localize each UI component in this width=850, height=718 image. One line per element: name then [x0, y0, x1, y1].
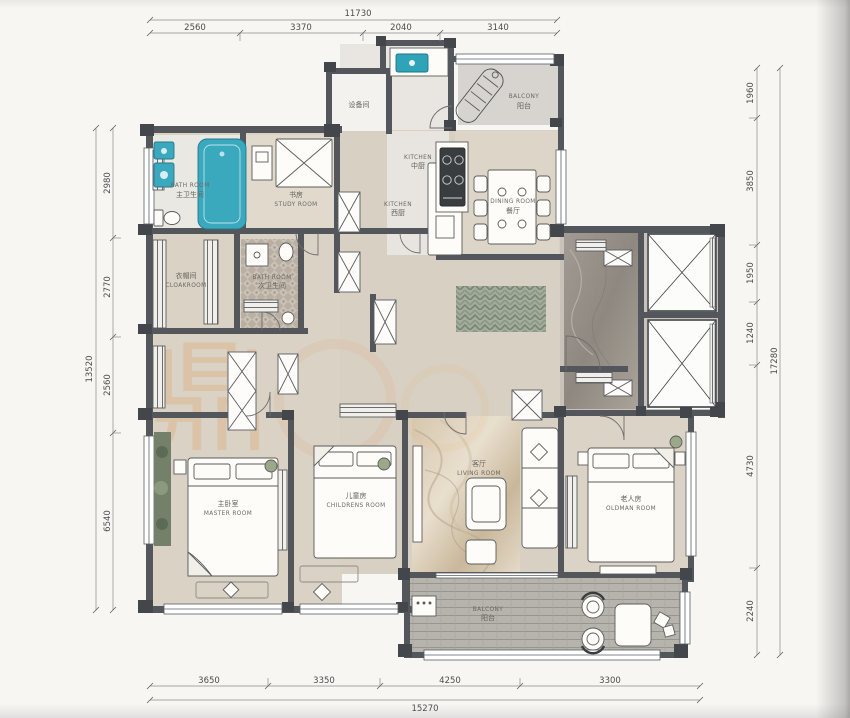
svg-text:DINING ROOM: DINING ROOM [490, 199, 535, 205]
closet-x-4 [278, 354, 298, 394]
svg-text:客厅: 客厅 [472, 459, 486, 468]
room-label-bath-guest: BATH ROOM 次卫生间 [253, 275, 292, 290]
elevator-1 [648, 234, 716, 311]
balcony-table [615, 604, 651, 646]
svg-text:4250: 4250 [439, 676, 461, 686]
svg-text:1240: 1240 [746, 322, 756, 344]
children-plant-pot [378, 458, 390, 470]
svg-text:1950: 1950 [746, 262, 756, 284]
svg-text:LIVING ROOM: LIVING ROOM [457, 471, 501, 477]
master-bed [188, 458, 278, 576]
floorplan-drawing: 鼎 [0, 0, 850, 718]
window-balcony-top [456, 54, 554, 64]
master-plant [154, 432, 171, 546]
svg-text:BATH ROOM: BATH ROOM [171, 183, 210, 189]
dim-right: 1960 3850 1950 1240 4730 2240 17280 [746, 65, 783, 658]
svg-text:阳台: 阳台 [481, 613, 495, 622]
entry-mat [456, 286, 546, 332]
oldman-bench [600, 566, 656, 574]
svg-text:3350: 3350 [313, 676, 335, 686]
study-desk [252, 146, 272, 180]
room-label-bath-master: BATH ROOM 主卫生间 [171, 183, 210, 199]
svg-text:CHILDRENS ROOM: CHILDRENS ROOM [326, 503, 385, 509]
cloak-wardrobe-right [204, 240, 218, 324]
entry-shoe-cabinet [576, 240, 606, 251]
svg-text:3300: 3300 [599, 676, 621, 686]
svg-text:MASTER ROOM: MASTER ROOM [204, 511, 252, 517]
entry-bench [576, 372, 612, 383]
toilet-icon [154, 210, 180, 226]
floorplan-photo: 鼎 [0, 0, 850, 718]
svg-text:2240: 2240 [746, 600, 756, 622]
svg-text:BATH ROOM: BATH ROOM [253, 275, 292, 281]
svg-text:餐厅: 餐厅 [506, 206, 520, 215]
svg-text:11730: 11730 [344, 9, 371, 19]
window-balcony-east [680, 592, 690, 644]
svg-text:2980: 2980 [103, 172, 113, 194]
closet-x-5 [374, 300, 396, 344]
photo-edge-bottom [0, 704, 850, 718]
closet-x-3 [228, 352, 256, 430]
svg-text:2040: 2040 [390, 23, 412, 33]
balcony-mat [412, 596, 436, 616]
photo-edge-right [816, 0, 850, 718]
photo-edge-top [0, 0, 850, 8]
stove-icon [440, 148, 465, 206]
window-dining-east [556, 150, 566, 224]
closet-x-7 [604, 250, 632, 266]
dim-top: 11730 2560 3370 2040 3140 [147, 9, 560, 41]
svg-text:BALCONY: BALCONY [473, 607, 504, 613]
sofa [522, 428, 558, 548]
window-master-west [144, 436, 154, 544]
balcony-deco-2 [663, 625, 675, 637]
svg-text:STUDY ROOM: STUDY ROOM [274, 202, 317, 208]
svg-text:3140: 3140 [487, 23, 509, 33]
svg-text:主卧室: 主卧室 [218, 499, 239, 508]
svg-text:次卫生间: 次卫生间 [258, 281, 286, 290]
tv-console [413, 446, 422, 542]
hall-radiator [153, 346, 165, 408]
svg-text:17280: 17280 [770, 347, 780, 374]
oldman-nightstand-left [578, 452, 588, 465]
svg-text:1960: 1960 [746, 82, 756, 104]
sink-guest-icon [282, 312, 294, 324]
bathguest-cabinet [244, 300, 278, 312]
shower-icon [246, 244, 268, 266]
room-label-equipment: 设备间 [349, 100, 370, 109]
svg-text:CLOAKROOM: CLOAKROOM [165, 283, 206, 289]
svg-text:西厨: 西厨 [391, 209, 405, 217]
master-plant-pot [265, 460, 277, 472]
svg-text:3850: 3850 [746, 170, 756, 192]
oldman-plant-pot [670, 436, 682, 448]
master-nightstand [174, 460, 186, 474]
svg-text:书房: 书房 [289, 190, 303, 199]
svg-text:老人房: 老人房 [621, 494, 642, 503]
svg-text:BALCONY: BALCONY [509, 94, 540, 100]
toilet-guest-icon [279, 243, 293, 261]
svg-text:3650: 3650 [198, 676, 220, 686]
elevator-shafts [648, 234, 716, 407]
svg-text:阳台: 阳台 [517, 101, 531, 110]
window-living-balcony-slider [436, 573, 558, 578]
study-bed [252, 139, 332, 187]
oldman-nightstand-right [675, 452, 685, 465]
svg-text:2560: 2560 [103, 374, 113, 396]
svg-text:主卫生间: 主卫生间 [176, 190, 204, 199]
svg-text:儿童房: 儿童房 [346, 491, 367, 500]
svg-text:6540: 6540 [103, 510, 113, 532]
svg-text:衣帽间: 衣帽间 [176, 271, 197, 280]
svg-text:3370: 3370 [290, 23, 312, 33]
svg-text:KITCHEN: KITCHEN [384, 202, 412, 208]
closet-x-1 [338, 192, 360, 232]
svg-text:2560: 2560 [184, 23, 206, 33]
window-oldman-east [686, 432, 696, 556]
window-master-south [164, 604, 282, 614]
cloak-wardrobe-left [153, 240, 166, 328]
svg-text:OLDMAN ROOM: OLDMAN ROOM [606, 506, 656, 512]
elevator-2 [648, 320, 716, 407]
children-closet [340, 404, 396, 417]
window-balcony-south [424, 650, 660, 660]
window-children-south [300, 604, 398, 614]
svg-text:中厨: 中厨 [411, 161, 425, 170]
closet-x-6 [512, 390, 542, 420]
svg-text:2770: 2770 [103, 276, 113, 298]
svg-text:KITCHEN: KITCHEN [404, 155, 432, 161]
window-bath-west [144, 148, 154, 224]
svg-text:13520: 13520 [85, 355, 95, 382]
oldman-bed [588, 448, 674, 562]
bath-sink-icons [154, 142, 174, 187]
dim-left: 13520 2980 2770 2560 6540 [85, 125, 121, 613]
pouf [466, 540, 496, 564]
oldman-closet [566, 476, 577, 548]
svg-text:4730: 4730 [746, 455, 756, 477]
closet-x-2 [338, 252, 360, 292]
